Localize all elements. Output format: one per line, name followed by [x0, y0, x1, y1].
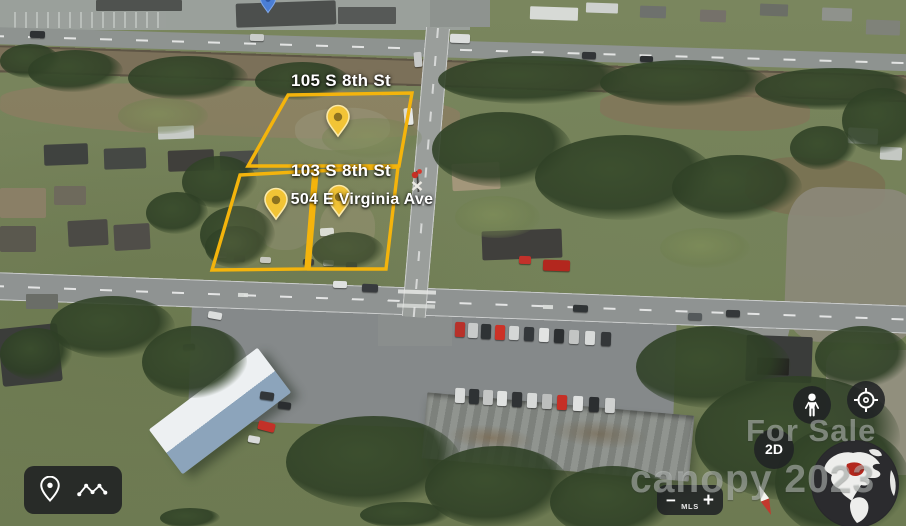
tree [790, 126, 856, 170]
car [250, 34, 264, 41]
parcel-label-105: 105 S 8th St [291, 71, 391, 91]
car [605, 398, 616, 413]
zoom-control: − MLS + [657, 485, 723, 515]
car [469, 389, 480, 404]
map-viewport[interactable]: 105 S 8th St 103 S 8th St 504 E Virginia… [0, 0, 906, 526]
car [589, 397, 600, 412]
tree [600, 60, 770, 106]
building-roof [67, 219, 108, 247]
car [582, 52, 596, 59]
car [468, 323, 479, 338]
blue-3d-marker-icon [257, 0, 279, 16]
tree [0, 328, 72, 380]
tree [672, 155, 802, 220]
car [573, 305, 588, 313]
car [413, 52, 422, 68]
car [30, 31, 45, 38]
building-roof [104, 147, 147, 169]
globe-view-button[interactable] [811, 440, 899, 526]
tree [128, 56, 248, 100]
building-roof [236, 0, 337, 27]
car [601, 332, 611, 346]
parcel-label-504: 504 E Virginia Ave [291, 191, 434, 209]
building-roof [700, 10, 726, 23]
car [303, 259, 314, 266]
building-roof [760, 4, 788, 17]
tree [322, 118, 422, 158]
globe-icon [811, 440, 899, 526]
car [539, 328, 549, 342]
parking-stalls [14, 12, 166, 28]
building-roof [44, 143, 89, 166]
tree [146, 192, 208, 234]
car [726, 310, 740, 317]
car [495, 325, 506, 340]
2d-view-button[interactable]: 2D [754, 429, 794, 469]
car [554, 329, 564, 343]
car [362, 284, 378, 293]
car [557, 395, 568, 410]
car [688, 313, 702, 320]
tree [160, 508, 220, 526]
car [519, 256, 531, 264]
my-location-icon [853, 387, 879, 413]
building-roof [530, 6, 578, 21]
drop-pin-button[interactable] [37, 476, 63, 504]
measure-button[interactable] [75, 479, 109, 501]
car [247, 435, 260, 444]
tree [142, 326, 247, 398]
tree [312, 232, 384, 270]
building-roof [0, 188, 46, 218]
tree [660, 228, 750, 268]
car [543, 260, 570, 272]
building-roof [54, 186, 86, 205]
map-tools-panel [24, 466, 122, 514]
car [497, 391, 508, 406]
mls-brand-label: MLS [681, 502, 699, 511]
car [455, 388, 466, 403]
car [450, 34, 470, 44]
tree [455, 196, 540, 238]
building-roof [26, 294, 58, 309]
car [524, 327, 534, 341]
building-roof [113, 223, 150, 251]
car [481, 324, 492, 339]
building-roof [586, 2, 618, 13]
building-roof [822, 7, 852, 21]
car [455, 322, 466, 337]
car [569, 330, 579, 344]
car [527, 393, 538, 408]
building-roof [640, 6, 666, 19]
zoom-out-button[interactable]: − [666, 492, 676, 509]
building-roof [0, 226, 36, 252]
2d-view-label: 2D [765, 441, 783, 457]
parcel-label-103: 103 S 8th St [291, 161, 391, 181]
road-marking [543, 305, 553, 309]
road-marking [238, 293, 248, 297]
zoom-in-button[interactable]: + [703, 491, 714, 510]
building-roof [338, 7, 396, 24]
building-roof [96, 0, 182, 11]
road [430, 0, 490, 27]
car [512, 392, 523, 407]
tree [205, 226, 267, 268]
car [573, 396, 584, 411]
tree [815, 326, 906, 388]
tree [360, 502, 450, 526]
car [333, 281, 347, 288]
pegman-button[interactable] [793, 386, 831, 424]
car [585, 331, 595, 345]
pegman-icon [800, 392, 824, 418]
measure-path-icon [75, 479, 109, 501]
tree [28, 50, 123, 92]
building-roof [866, 19, 901, 35]
car [509, 326, 519, 340]
car [542, 394, 553, 409]
tree [118, 98, 208, 134]
my-location-button[interactable] [847, 381, 885, 419]
car [483, 390, 494, 405]
place-pin-icon [37, 476, 63, 504]
